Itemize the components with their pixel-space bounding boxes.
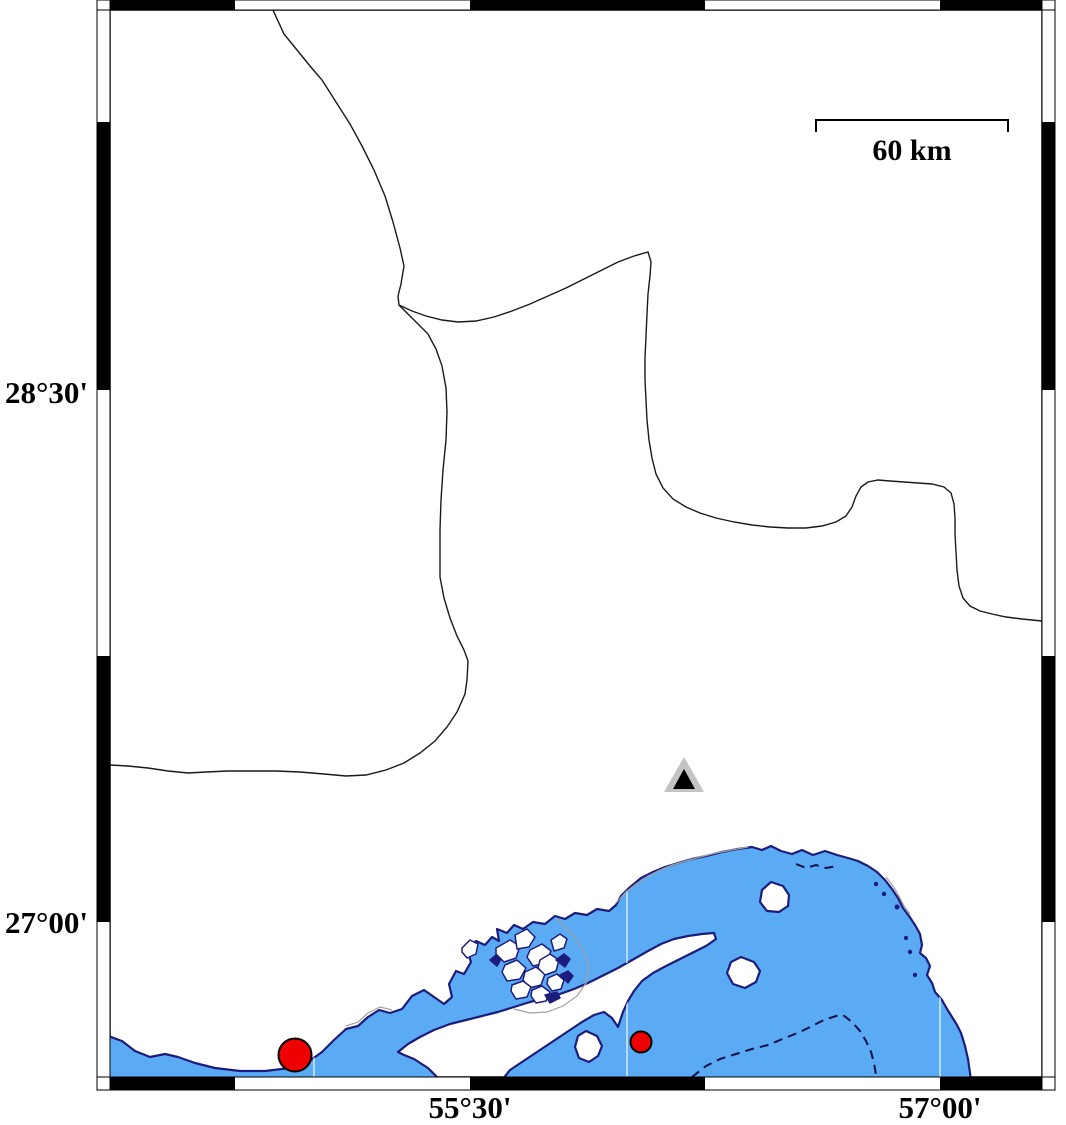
lat-label-27-00: 27°00': [5, 905, 88, 940]
map-canvas: 60 km 28°30' 27°00' 5: [0, 0, 1066, 1125]
lon-label-55-30: 55°30': [428, 1090, 511, 1125]
frame-tick-bottom: [110, 1077, 235, 1090]
lat-label-28-30: 28°30': [5, 375, 88, 410]
lon-label-57-00: 57°00': [898, 1090, 981, 1125]
scale-bar-label: 60 km: [872, 134, 951, 167]
frame-tick-right: [1042, 122, 1055, 390]
earthquake-marker-large: [279, 1039, 312, 1072]
earthquake-marker-small: [631, 1032, 652, 1053]
frame-tick-left: [97, 122, 110, 390]
map-figure: 60 km 28°30' 27°00' 5: [0, 0, 1066, 1125]
frame-tick-top: [110, 0, 235, 10]
